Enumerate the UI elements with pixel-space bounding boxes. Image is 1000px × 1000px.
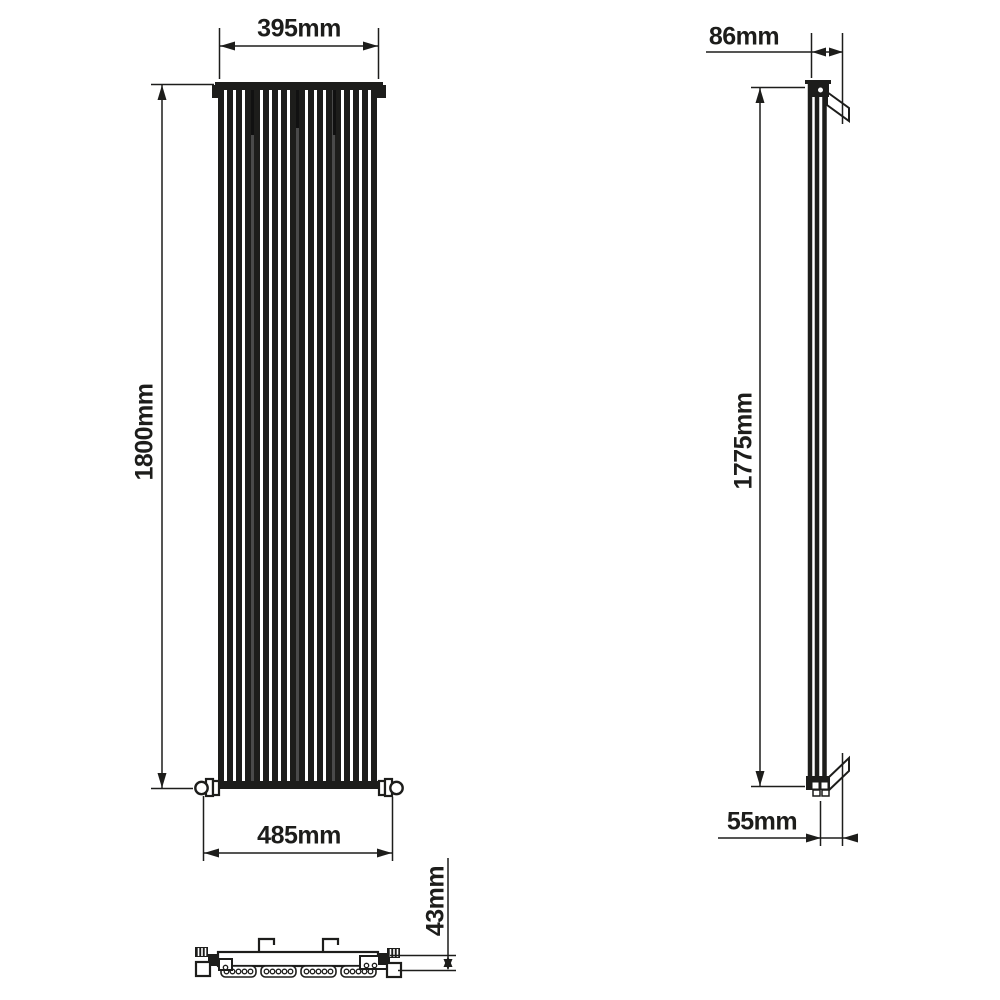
- dim-label-front-width-top: 395mm: [257, 17, 341, 42]
- plan-column-groups: [221, 966, 376, 977]
- dim-label-front-height: 1800mm: [133, 383, 158, 480]
- front-view: [195, 82, 402, 796]
- front-left-valve: [195, 779, 219, 796]
- arrow-right-icon: [363, 42, 378, 51]
- dim-label-side-depth-top: 86mm: [709, 25, 779, 50]
- side-bottom-bracket-flag: [828, 758, 849, 791]
- front-top-cap-ear-left: [212, 85, 221, 98]
- dim-label-side-depth-wall: 55mm: [727, 810, 797, 835]
- side-bottom-bracket-window-right: [821, 782, 828, 789]
- side-bottom-bracket-window-left: [812, 782, 819, 789]
- plan-bracket-hooks: [259, 939, 338, 952]
- side-top-bracket-screw: [818, 87, 824, 93]
- side-top-cap: [805, 80, 831, 84]
- dim-label-plan-height: 43mm: [424, 866, 449, 936]
- arrow-left-icon: [204, 849, 219, 858]
- arrow-left-icon: [812, 48, 826, 57]
- front-top-cap: [215, 82, 383, 90]
- dim-label-side-height: 1775mm: [732, 392, 757, 489]
- front-top-cap-ear-right: [377, 85, 386, 98]
- dim-side-height: [751, 88, 805, 787]
- side-bottom-foot-right: [822, 790, 829, 796]
- arrow-up-icon: [158, 85, 167, 100]
- plan-header-bar: [218, 952, 378, 966]
- arrow-right-icon: [829, 48, 843, 57]
- radiator-dimension-diagram: 395mm 1800mm 485mm 86mm 1775mm 55mm 43mm: [0, 0, 1000, 1000]
- arrow-left-icon: [843, 834, 858, 843]
- technical-drawing: [0, 0, 1000, 1000]
- side-view: [805, 80, 849, 796]
- side-top-bracket-flag: [827, 92, 849, 121]
- dim-front-height: [151, 85, 214, 789]
- side-panel-profile: [810, 84, 825, 788]
- side-bottom-foot-left: [813, 790, 820, 796]
- front-right-valve: [379, 779, 403, 796]
- arrow-right-icon: [806, 834, 821, 843]
- arrow-down-icon: [158, 773, 167, 788]
- front-bottom-cap: [218, 781, 380, 789]
- front-right-valve-knob: [390, 782, 402, 794]
- dim-label-front-width-bottom: 485mm: [257, 824, 341, 849]
- arrow-down-icon: [756, 771, 765, 786]
- arrow-left-icon: [220, 42, 235, 51]
- arrow-up-icon: [756, 88, 765, 103]
- plan-column-ports: [224, 969, 373, 974]
- plan-view: [195, 939, 401, 977]
- arrow-right-icon: [377, 849, 392, 858]
- front-left-valve-knob: [195, 782, 207, 794]
